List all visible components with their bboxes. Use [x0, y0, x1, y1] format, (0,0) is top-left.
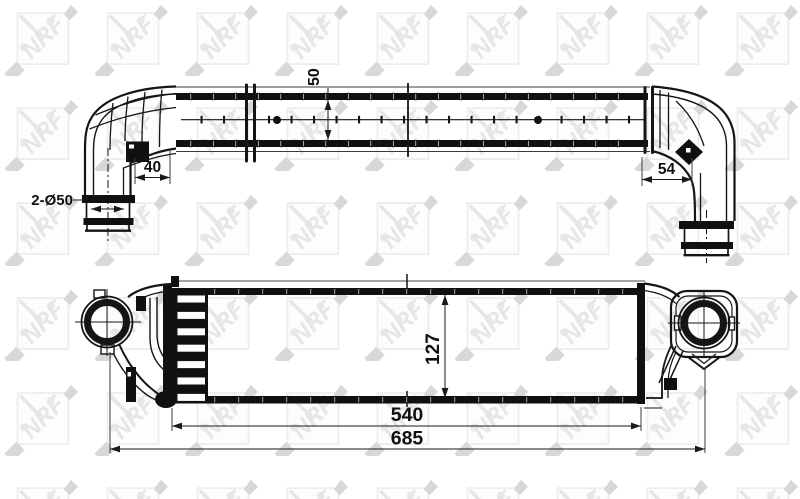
dimension-arrowhead: [325, 100, 332, 110]
watermark-tile: [454, 290, 528, 367]
core-tick: [358, 289, 360, 295]
tube-tick: [595, 93, 597, 99]
core-tick: [502, 396, 504, 402]
watermark-tile: [4, 5, 78, 82]
tube-tick: [550, 140, 552, 146]
watermark-tile: [634, 195, 708, 272]
tube-tick: [213, 93, 215, 99]
watermark-tile: [544, 480, 618, 499]
centerline-tick: [336, 116, 337, 123]
dim-label-outlet-offset: 54: [658, 161, 676, 178]
watermark-tile: [364, 195, 438, 272]
watermark-tile: [724, 385, 798, 462]
centerline-tick: [246, 116, 247, 123]
core-tick: [262, 396, 264, 402]
tube-tick: [438, 140, 440, 146]
core-tick: [310, 289, 312, 295]
centerline-tick: [516, 116, 517, 123]
watermark-tile: [184, 5, 258, 82]
rivet-dot: [273, 116, 281, 124]
centerline-tick: [359, 116, 360, 123]
watermark-tile: [634, 480, 708, 499]
watermark-tile: [724, 480, 798, 499]
core-tick: [286, 289, 288, 295]
core-tick: [598, 289, 600, 295]
fin-slot: [177, 393, 206, 401]
tube-tick: [505, 93, 507, 99]
watermark-tile: [184, 480, 258, 499]
watermark-tile: [544, 5, 618, 82]
watermark-tile: [274, 290, 348, 367]
watermark-tile: [544, 290, 618, 367]
lower-boss: [155, 391, 177, 408]
centerline-tick: [291, 116, 292, 123]
fin-slot: [177, 361, 206, 369]
top-tab: [171, 276, 179, 287]
tube-tick: [573, 140, 575, 146]
tube-tick: [528, 93, 530, 99]
dim-label-core-height: 127: [423, 333, 444, 365]
rib-line: [160, 90, 163, 148]
centerline-tick: [629, 116, 630, 123]
core-tick: [358, 396, 360, 402]
tube-tick: [460, 93, 462, 99]
dim-label-core-length: 540: [391, 404, 424, 426]
core-tick: [238, 289, 240, 295]
tube-tick: [415, 140, 417, 146]
watermark-tile: [94, 5, 168, 82]
tube-tick: [415, 93, 417, 99]
tube-tick: [618, 140, 620, 146]
core-tick: [502, 289, 504, 295]
centerline-tick: [404, 116, 405, 123]
tube-tick: [573, 93, 575, 99]
core-tick: [430, 289, 432, 295]
watermark-tile: [4, 290, 78, 367]
dimension-arrowhead: [442, 295, 449, 305]
core-tick: [550, 396, 552, 402]
core-tick: [478, 396, 480, 402]
core-tick: [406, 396, 408, 402]
centerline-tick: [314, 116, 315, 123]
port-neck: [136, 296, 146, 311]
core-tick: [622, 396, 624, 402]
watermark-tile: [94, 195, 168, 272]
tube-tick: [460, 140, 462, 146]
tube-tick: [303, 140, 305, 146]
dimension-arrowhead: [172, 423, 182, 430]
core-tick: [406, 289, 408, 295]
tube-tick: [550, 93, 552, 99]
fin-slot: [177, 295, 206, 303]
centerline-tick: [224, 116, 225, 123]
watermark-tile: [4, 385, 78, 462]
tube-tick: [280, 140, 282, 146]
tube-tick: [393, 93, 395, 99]
dim-label-port-diameter: 2-Ø50: [31, 192, 73, 209]
tube-tick: [618, 93, 620, 99]
core-top-bar: [173, 288, 644, 295]
core-tick: [550, 289, 552, 295]
tube-tick: [280, 93, 282, 99]
tube-tick: [348, 93, 350, 99]
core-tick: [214, 396, 216, 402]
core-tick: [310, 396, 312, 402]
tube-tick: [370, 140, 372, 146]
core-tick: [334, 289, 336, 295]
core-tick: [286, 396, 288, 402]
core-tick: [598, 396, 600, 402]
watermark-tile: [4, 480, 78, 499]
core-tick: [382, 396, 384, 402]
tube-tick: [235, 93, 237, 99]
core-tick: [214, 289, 216, 295]
core-tick: [430, 396, 432, 402]
core-tick: [526, 289, 528, 295]
centerline-tick: [606, 116, 607, 123]
centerline-tick: [539, 116, 540, 123]
core-tick: [622, 289, 624, 295]
tube-tick: [483, 93, 485, 99]
watermark-tile: [364, 100, 438, 177]
core-tick: [574, 396, 576, 402]
tube-tick: [258, 93, 260, 99]
watermark-tile: [4, 100, 78, 177]
tube-tick: [190, 140, 192, 146]
dim-label-tube-depth: 50: [306, 68, 323, 86]
watermark-tile: [724, 5, 798, 82]
watermark-tile: [454, 480, 528, 499]
right-side-plate: [637, 283, 645, 404]
watermark-tile: [274, 480, 348, 499]
centerline-tick: [201, 116, 202, 123]
dimension-arrowhead: [631, 423, 641, 430]
centerline-tick: [449, 116, 450, 123]
core-tick: [382, 289, 384, 295]
fin-slot: [177, 328, 206, 336]
core-tick: [262, 289, 264, 295]
centerline-tick: [584, 116, 585, 123]
core-tick: [574, 289, 576, 295]
core-tick: [238, 396, 240, 402]
centerline-tick: [494, 116, 495, 123]
dim-label-inlet-offset: 40: [144, 159, 161, 176]
tube-tick: [505, 140, 507, 146]
watermark-tile: [274, 195, 348, 272]
dimension-arrowhead: [91, 206, 101, 213]
watermark-tile: [634, 5, 708, 82]
tube-tick: [235, 140, 237, 146]
centerline-tick: [269, 116, 270, 123]
dimension-arrowhead: [160, 174, 170, 181]
fin-slot: [177, 344, 206, 352]
watermark-tile: [544, 100, 618, 177]
watermark-tile: [184, 195, 258, 272]
tube-tick: [213, 140, 215, 146]
fin-slot: [177, 377, 206, 385]
drawing-sheet: NRF: [0, 0, 800, 499]
centerline-tick: [381, 116, 382, 123]
tube-tick: [528, 140, 530, 146]
dimension-arrowhead: [642, 176, 652, 183]
tube-tick: [370, 93, 372, 99]
tube-tick: [438, 93, 440, 99]
fin-slot: [177, 311, 206, 319]
dim-label-overall-length: 685: [391, 428, 424, 450]
technical-drawing-canvas: NRF: [0, 0, 800, 499]
tube-tick: [348, 140, 350, 146]
tube-tick: [483, 140, 485, 146]
watermark-tile: [94, 480, 168, 499]
centerline-tick: [426, 116, 427, 123]
mount-boss: [664, 378, 677, 390]
core-tick: [526, 396, 528, 402]
core-tick: [454, 396, 456, 402]
core-tick: [478, 289, 480, 295]
centerline-tick: [561, 116, 562, 123]
core-tick: [454, 289, 456, 295]
watermark-tile: [274, 100, 348, 177]
watermark-tile: [544, 195, 618, 272]
tube-tick: [595, 140, 597, 146]
watermark-tile: [454, 195, 528, 272]
tube-tick: [258, 140, 260, 146]
watermark-tile: [454, 100, 528, 177]
watermark-tile: [364, 5, 438, 82]
core-tick: [334, 396, 336, 402]
dimension-arrowhead: [695, 446, 705, 453]
tube-tick: [325, 140, 327, 146]
tube-tick: [303, 93, 305, 99]
left-side-plate: [163, 284, 172, 404]
tube-tick: [325, 93, 327, 99]
watermark-tile: [364, 480, 438, 499]
tube-tick: [190, 93, 192, 99]
watermark-tile: [454, 5, 528, 82]
centerline-tick: [471, 116, 472, 123]
tube-tick: [393, 140, 395, 146]
